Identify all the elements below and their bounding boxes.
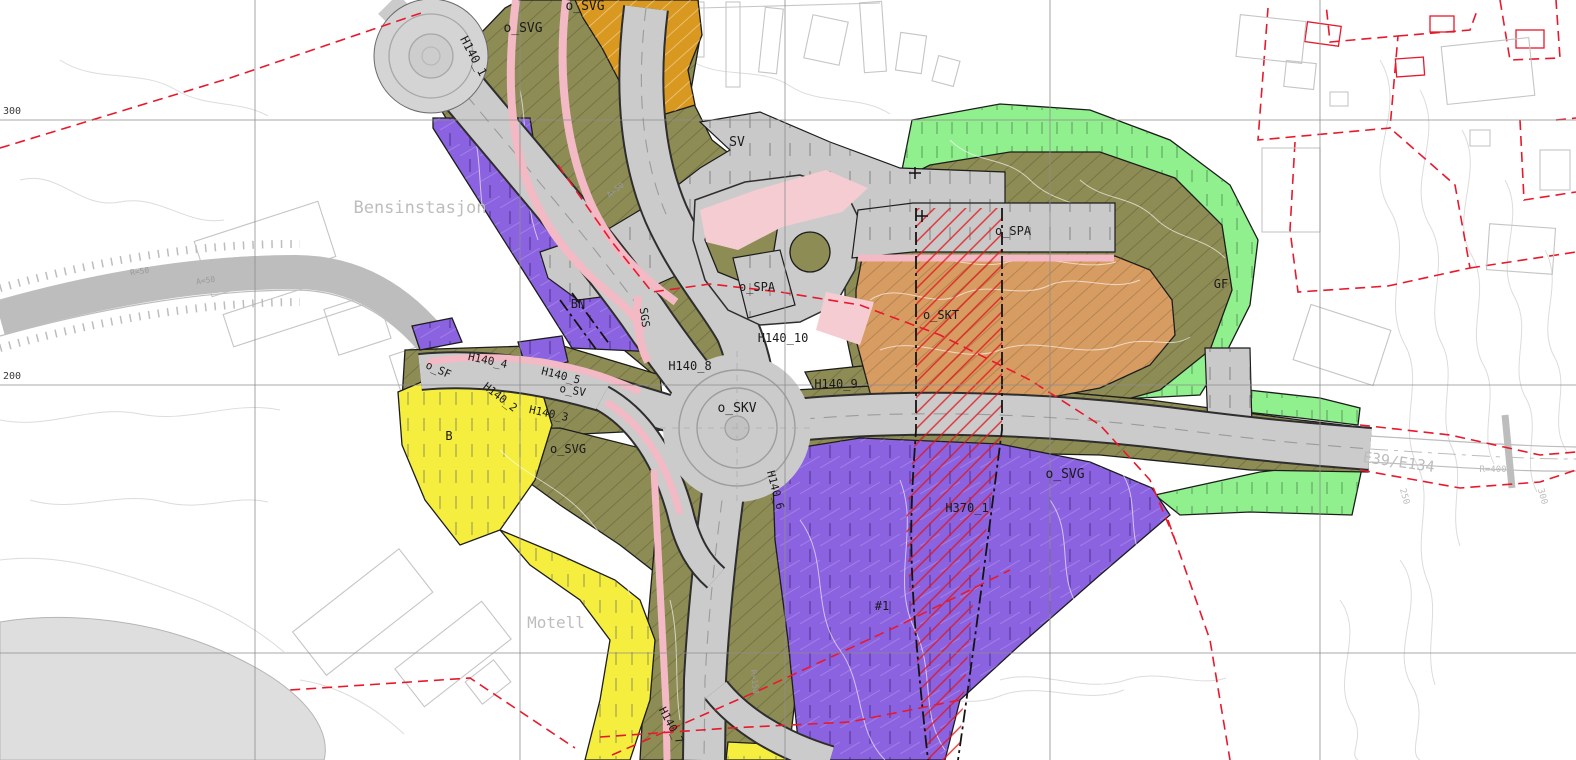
map-label: o_SPA [739, 280, 776, 294]
map-label: 200 [3, 371, 21, 382]
map-label: Motell [527, 613, 585, 632]
map-label: 300 [3, 106, 21, 117]
map-label: GF [1214, 277, 1228, 291]
map-label: o_SKV [717, 401, 756, 416]
map-label: BN [571, 297, 585, 311]
map-label: R=400 [1479, 465, 1506, 475]
map-label: o_SVG [503, 21, 542, 36]
parcel-boundaries [1236, 0, 1576, 386]
map-label: 250 [1397, 487, 1411, 505]
map-label: o_SPA [995, 224, 1032, 238]
shore-area [0, 617, 325, 760]
map-label: o_SVG [1045, 467, 1084, 482]
map-label: H140_9 [814, 377, 857, 391]
loop-island [790, 232, 830, 272]
map-label: B [445, 429, 452, 443]
map-label: o_SVG [565, 0, 604, 14]
hazard-zone-h370 [906, 208, 1002, 760]
map-label: E39/E134 [1362, 448, 1436, 476]
map-label: Bensinstasjon [353, 198, 486, 218]
map-label: SV [729, 135, 745, 150]
map-label: #1 [875, 599, 889, 613]
map-label: H370_1 [945, 501, 988, 515]
map-label: 300 [1535, 487, 1549, 505]
map-label: H140_10 [758, 331, 809, 345]
map-label: o_SVG [550, 442, 586, 456]
map-label: SGS [637, 307, 653, 328]
map-label: H140_8 [668, 359, 711, 373]
map-label: o_SKT [923, 308, 959, 322]
zoning-plan-map[interactable]: o_SVGo_SVGH140_1SVBensinstasjonBNSGSo_SP… [0, 0, 1576, 760]
